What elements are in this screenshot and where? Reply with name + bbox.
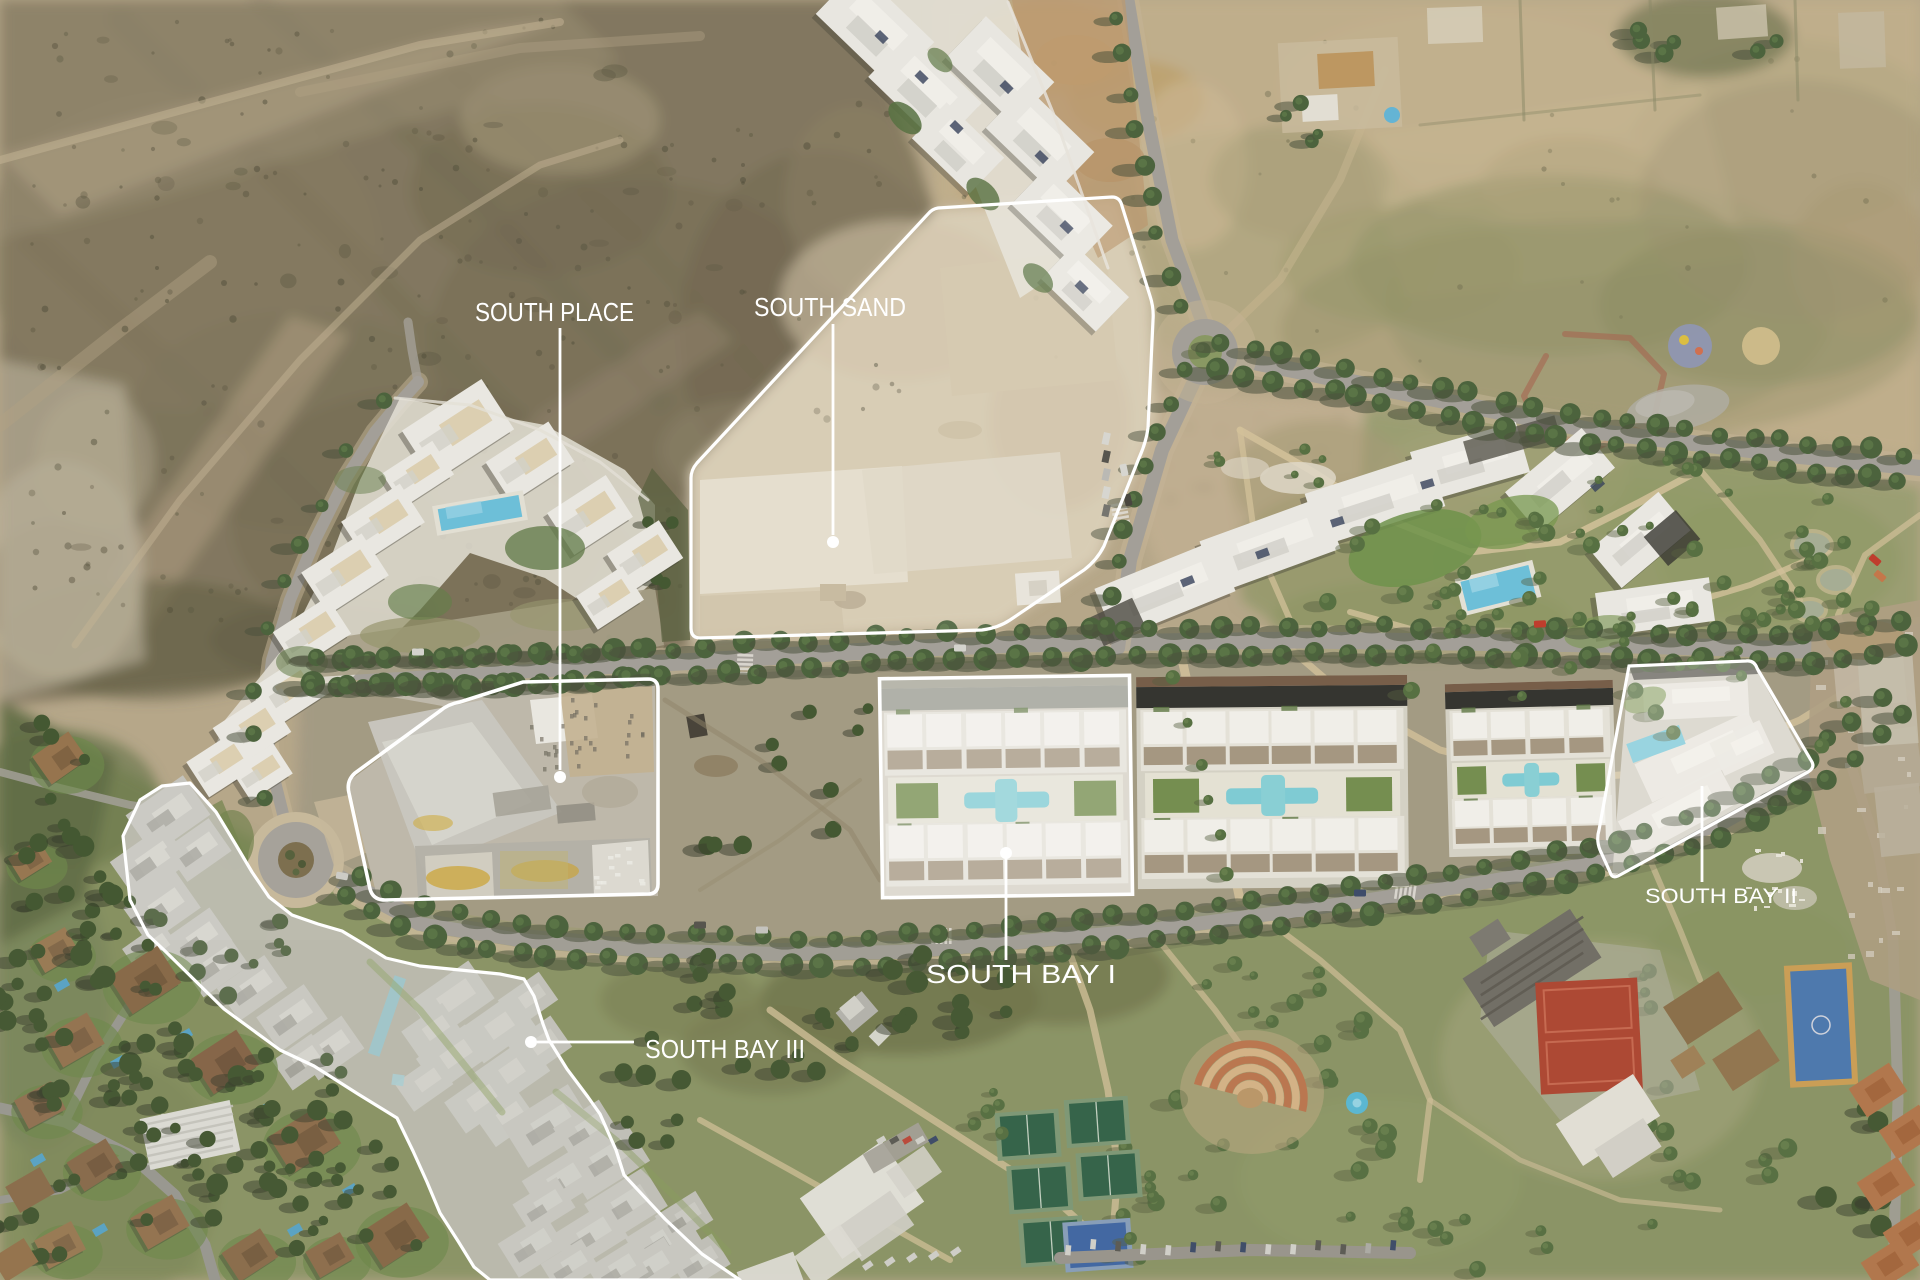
svg-text:SOUTH BAY I: SOUTH BAY I — [926, 959, 1116, 989]
svg-text:SOUTH BAY II: SOUTH BAY II — [1645, 885, 1797, 908]
svg-text:SOUTH SAND: SOUTH SAND — [754, 292, 906, 322]
svg-text:SOUTH PLACE: SOUTH PLACE — [475, 297, 634, 327]
svg-text:SOUTH BAY III: SOUTH BAY III — [645, 1034, 805, 1064]
